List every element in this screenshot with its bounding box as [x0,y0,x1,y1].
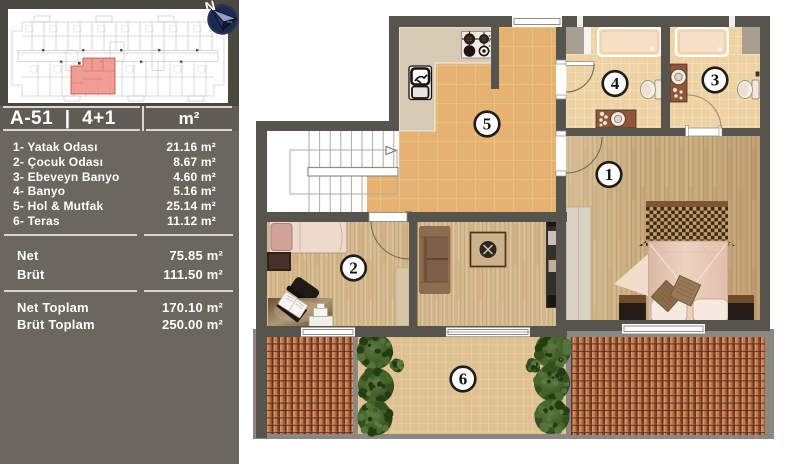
svg-text:6: 6 [459,370,468,389]
svg-text:2: 2 [349,259,358,278]
svg-text:4: 4 [611,74,620,93]
svg-text:1: 1 [605,165,614,184]
svg-text:5: 5 [483,115,492,134]
svg-text:3: 3 [711,71,720,90]
svg-text:N: N [203,0,217,15]
